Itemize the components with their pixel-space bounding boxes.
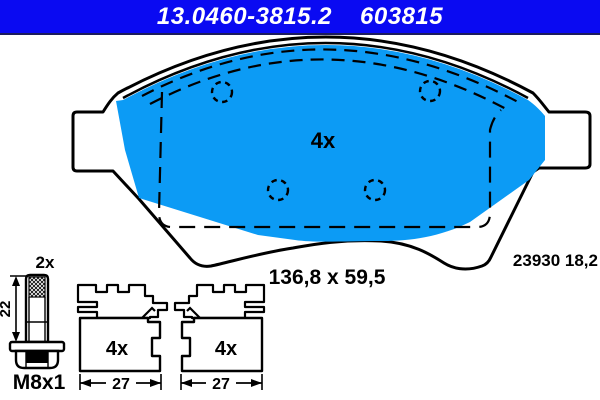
- pad-size-label: 136,8 x 59,5: [269, 266, 386, 289]
- profile-right-quantity-label: 4x: [215, 338, 237, 360]
- guide-bolt-drawing: 2x 22 SW13 M8x1: [0, 253, 66, 394]
- profile-right-width-label: 27: [212, 376, 230, 393]
- profile-left-quantity-label: 4x: [106, 338, 128, 360]
- pad-quantity-label: 4x: [311, 128, 336, 153]
- technical-drawing: 4x 136,8 x 59,5 23930 18,2 2x 22: [0, 0, 600, 400]
- bolt-quantity-label: 2x: [36, 253, 55, 272]
- profile-left-width-label: 27: [112, 376, 130, 393]
- bolt-knurl: [29, 277, 45, 297]
- bolt-wrench-size-label: SW13: [26, 354, 48, 363]
- profile-clip: [78, 285, 167, 318]
- product-drawing-sheet: 13.0460-3815.2 603815: [0, 0, 600, 400]
- bolt-length-dimension: 22: [0, 276, 27, 342]
- part-number: 13.0460-3815.2: [157, 3, 332, 31]
- pad-wva-label: 23930 18,2: [513, 251, 598, 270]
- profile-clip: [175, 285, 264, 318]
- bolt-thread-label: M8x1: [13, 371, 66, 394]
- brake-pad-top-view: 4x 136,8 x 59,5 23930 18,2: [73, 37, 598, 289]
- header-bar: 13.0460-3815.2 603815: [0, 0, 600, 35]
- bolt-flange: [10, 342, 64, 351]
- bolt-length-label: 22: [0, 301, 14, 318]
- article-code: 603815: [360, 3, 443, 31]
